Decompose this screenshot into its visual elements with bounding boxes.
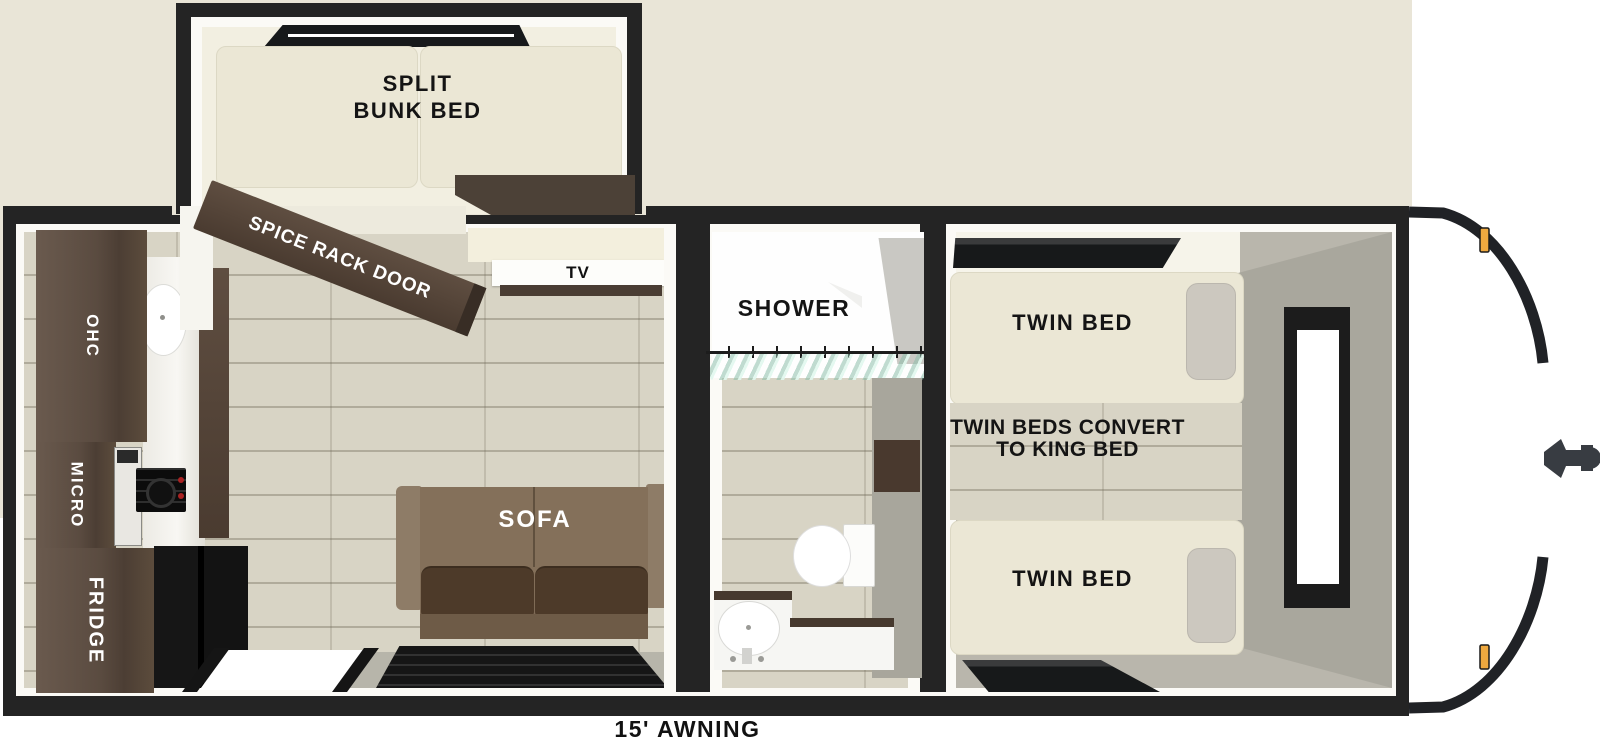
awning-label: 15' AWNING: [485, 716, 890, 742]
cooktop-knob: [178, 493, 184, 499]
twin-beds-convert-label: TWIN BEDS CONVERT TO KING BED: [925, 417, 1210, 461]
fridge-cabinet: FRIDGE: [36, 548, 154, 693]
bunk-tv-cabinet: [455, 175, 635, 215]
trailer-nose-body: [1409, 206, 1548, 716]
bunk-label-line2: BUNK BED: [300, 97, 535, 124]
kitchen-sink-drain: [160, 315, 165, 320]
sofa-seat-cushion: [421, 566, 534, 616]
fridge-label: FRIDGE: [84, 577, 107, 665]
tv-cabinet-face: [468, 228, 676, 262]
vanity: [790, 627, 894, 670]
trailer-nose: [1409, 198, 1600, 724]
split-bunk-bed-label: SPLIT BUNK BED: [300, 70, 535, 124]
bunk-label-line1: SPLIT: [300, 70, 535, 97]
convert-label-line2: TO KING BED: [925, 439, 1210, 461]
cooktop-knob: [178, 477, 184, 483]
tv-label: TV: [566, 263, 590, 283]
sofa-arm: [396, 486, 422, 610]
shower-label: SHOWER: [714, 295, 874, 322]
sofa-seat-cushion: [535, 566, 648, 616]
overhead-cabinet-label: OHC: [82, 314, 102, 358]
toilet: [793, 525, 851, 587]
oven-control-panel: [117, 450, 138, 463]
wall-lining: [664, 224, 676, 692]
microwave-label: MICRO: [66, 462, 86, 529]
cooktop-burner: [146, 478, 176, 508]
pillow: [1186, 283, 1236, 380]
sofa-label: SOFA: [440, 506, 630, 534]
shower-curtain: [710, 354, 924, 380]
bathroom-cabinet: [874, 440, 920, 492]
marker-light-top: [1480, 228, 1489, 252]
bathroom-faucet-handle: [758, 656, 764, 662]
convert-label-line1: TWIN BEDS CONVERT: [925, 417, 1210, 439]
overhead-cabinet: OHC: [36, 230, 147, 442]
bedroom-window: [1297, 330, 1339, 584]
twin-bed-bottom-label: TWIN BED: [960, 566, 1185, 592]
pillow: [1187, 548, 1236, 643]
microwave-cabinet: MICRO: [36, 442, 116, 548]
rv-floorplan: OHC MICRO FRIDGE SOFA TV SHOWER: [0, 0, 1600, 742]
wall-living-bathroom: [676, 224, 710, 692]
entry-step-rug: [376, 646, 668, 688]
roof-vent-top: [953, 238, 1181, 268]
marker-light-bottom: [1480, 645, 1489, 669]
bathroom-faucet: [742, 648, 752, 664]
hitch-coupler: [1544, 439, 1600, 478]
tv-shelf: TV: [492, 260, 664, 286]
tv-shelf-trim: [500, 285, 662, 296]
bathroom-faucet-handle: [730, 656, 736, 662]
bunk-window-glass: [288, 34, 514, 37]
sofa-base: [420, 614, 648, 639]
twin-bed-top-label: TWIN BED: [960, 310, 1185, 336]
bathroom-sink-drain: [746, 625, 751, 630]
